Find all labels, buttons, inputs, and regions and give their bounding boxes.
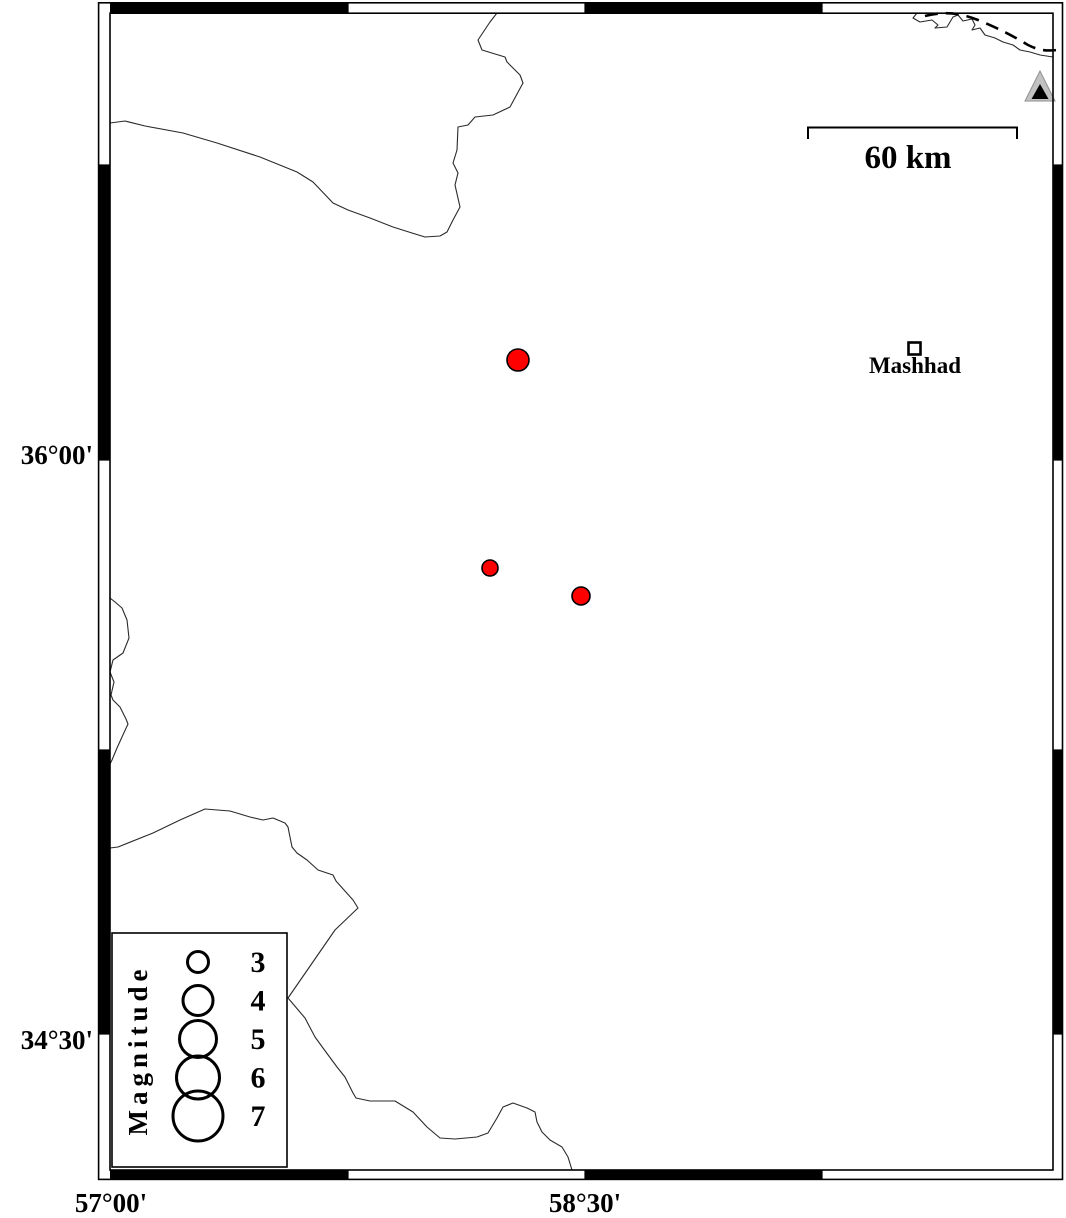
scale-bar-label: 60 km xyxy=(864,140,951,176)
frame-segment xyxy=(1053,165,1063,460)
lat-label-36-00: 36°00' xyxy=(21,440,93,470)
international-border-dashed-line xyxy=(925,13,1057,50)
seismicity-map: 36°00' 34°30' 57°00' 58°30' 60 km Mashha… xyxy=(0,0,1066,1218)
lon-label-58-30: 58°30' xyxy=(549,1188,621,1218)
legend-title: Magnitude xyxy=(123,964,153,1135)
frame-segment xyxy=(99,165,110,460)
legend-magnitude-label: 5 xyxy=(251,1023,266,1056)
frame-segment xyxy=(99,750,110,1034)
epicenters-layer xyxy=(482,349,590,605)
river-line-northeast xyxy=(913,13,1053,57)
legend-magnitude-label: 4 xyxy=(251,985,266,1018)
lon-label-57-00: 57°00' xyxy=(75,1188,147,1218)
lat-label-34-30: 34°30' xyxy=(21,1025,93,1055)
earthquake-epicenter xyxy=(572,587,590,605)
legend-magnitude-label: 6 xyxy=(251,1062,266,1095)
city-mashhad: Mashhad xyxy=(869,343,961,379)
frame-segment xyxy=(110,3,348,13)
magnitude-legend: Magnitude 34567 xyxy=(112,933,287,1167)
legend-magnitude-label: 3 xyxy=(251,946,266,979)
boundary-line-north-peninsula xyxy=(110,13,523,237)
station-triangle-icon xyxy=(1025,71,1055,101)
frame-segment xyxy=(585,1170,822,1179)
frame-segment xyxy=(1053,750,1063,1034)
city-label: Mashhad xyxy=(869,353,961,378)
legend-magnitude-label: 7 xyxy=(251,1100,266,1133)
boundary-line-west-wiggle xyxy=(110,598,129,764)
scale-bar-bracket xyxy=(808,128,1017,140)
earthquake-epicenter xyxy=(482,560,498,576)
scale-bar: 60 km xyxy=(808,128,1017,177)
frame-segment xyxy=(585,3,822,13)
frame-segment xyxy=(110,1170,348,1179)
earthquake-epicenter xyxy=(507,349,529,371)
map-canvas: 36°00' 34°30' 57°00' 58°30' 60 km Mashha… xyxy=(0,0,1066,1218)
